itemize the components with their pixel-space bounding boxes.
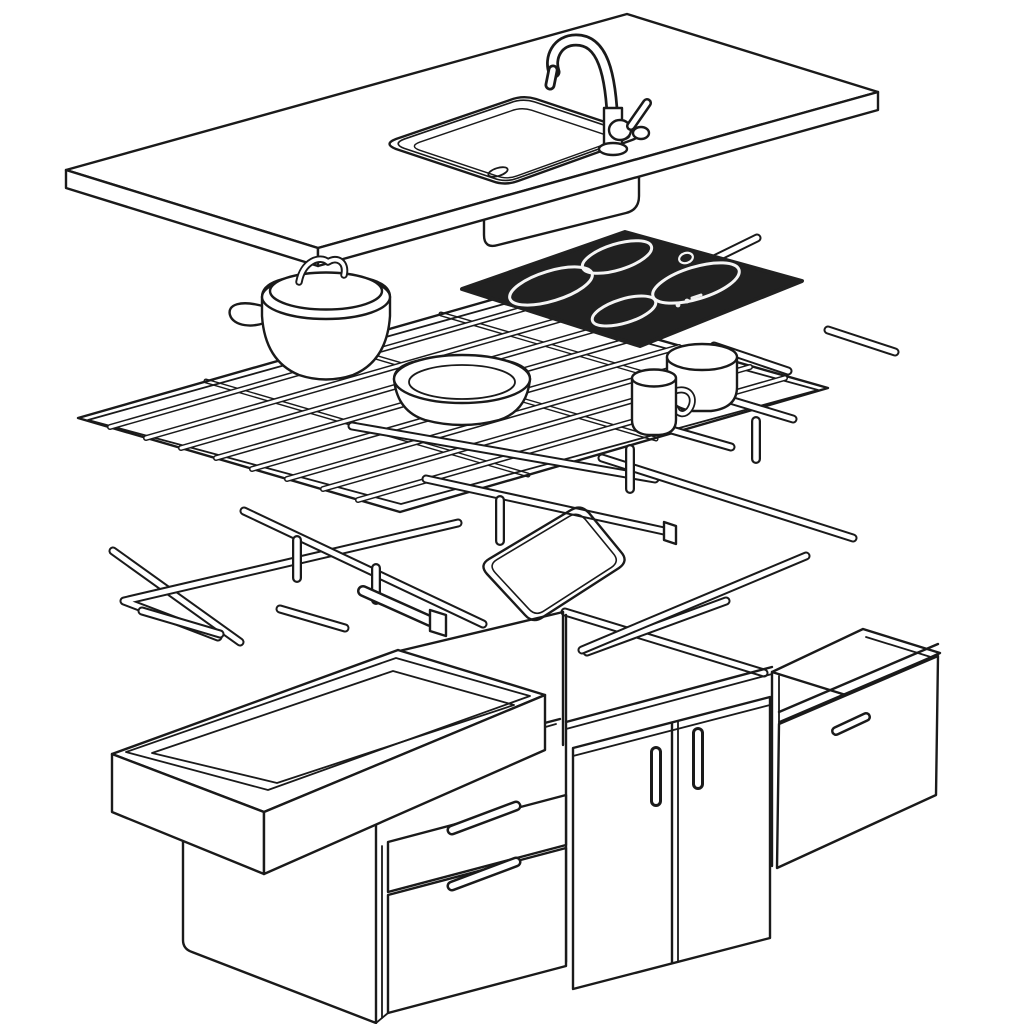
mug-rim xyxy=(632,370,676,387)
drawer-stack xyxy=(388,795,566,1013)
saute-pan xyxy=(394,355,530,425)
countertop-layer xyxy=(66,14,878,266)
faucet-base xyxy=(599,143,627,155)
frame-layer xyxy=(113,479,806,673)
cup xyxy=(667,344,737,411)
faucet-knob xyxy=(633,127,649,139)
illustration-canvas xyxy=(0,0,1024,1024)
exploded-kitchen-diagram xyxy=(0,0,1024,1024)
pot-lid xyxy=(270,273,382,310)
rail-end-block xyxy=(664,522,676,544)
stock-pot xyxy=(230,259,390,379)
induction-cooktop xyxy=(462,232,802,346)
cabinet-layer xyxy=(112,612,940,1023)
cup-rim xyxy=(667,344,737,370)
end-cabinet xyxy=(772,629,940,868)
pan-rim xyxy=(394,355,530,403)
cabinet-doors xyxy=(573,697,770,989)
frame-rails xyxy=(113,479,806,673)
